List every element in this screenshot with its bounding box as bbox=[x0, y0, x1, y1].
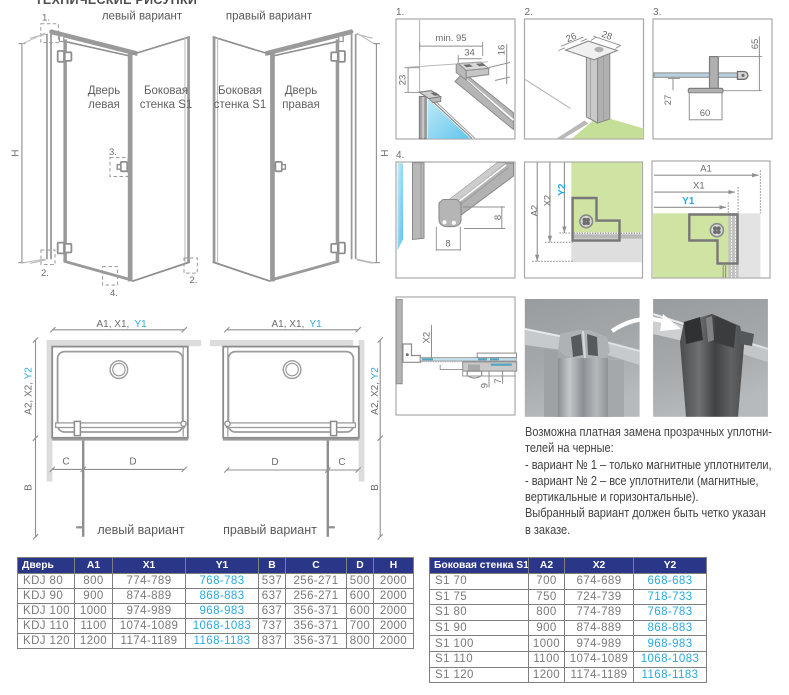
svg-text:левый вариант: левый вариант bbox=[97, 523, 185, 537]
svg-text:7: 7 bbox=[493, 378, 504, 383]
svg-text:Дверь: Дверь bbox=[88, 85, 121, 97]
svg-text:65: 65 bbox=[750, 39, 761, 50]
svg-text:Y2: Y2 bbox=[557, 183, 568, 196]
svg-text:D: D bbox=[271, 457, 278, 468]
svg-text:16: 16 bbox=[497, 45, 508, 56]
svg-text:Y1: Y1 bbox=[135, 319, 148, 330]
svg-text:8: 8 bbox=[445, 239, 450, 250]
svg-text:A1: A1 bbox=[700, 164, 712, 175]
svg-text:D: D bbox=[129, 457, 136, 468]
svg-text:правая: правая bbox=[282, 99, 320, 111]
svg-text:A2: A2 bbox=[530, 205, 541, 217]
svg-text:9: 9 bbox=[480, 383, 491, 388]
svg-text:стенка S1: стенка S1 bbox=[140, 99, 193, 111]
svg-text:B: B bbox=[24, 484, 35, 491]
svg-text:Дверь: Дверь bbox=[285, 85, 318, 97]
svg-text:60: 60 bbox=[700, 108, 711, 119]
svg-text:левый вариант: левый вариант bbox=[102, 11, 183, 23]
svg-text:H: H bbox=[380, 149, 391, 156]
svg-text:A2, X2, Y2: A2, X2, Y2 bbox=[24, 367, 35, 415]
svg-text:Боковая: Боковая bbox=[218, 85, 262, 97]
svg-text:C: C bbox=[62, 457, 69, 468]
svg-text:левая: левая bbox=[88, 99, 120, 111]
svg-text:1.: 1. bbox=[42, 13, 50, 24]
svg-text:A2, X2, Y2: A2, X2, Y2 bbox=[370, 367, 381, 415]
svg-text:Y1: Y1 bbox=[682, 196, 695, 207]
svg-text:3.: 3. bbox=[109, 147, 117, 158]
svg-text:C: C bbox=[338, 457, 345, 468]
svg-text:ТЕХНИЧЕСКИЕ РИСУНКИ: ТЕХНИЧЕСКИЕ РИСУНКИ bbox=[35, 0, 197, 7]
svg-text:A1, X1,: A1, X1, bbox=[272, 319, 305, 330]
svg-text:A1, X1,: A1, X1, bbox=[97, 319, 130, 330]
svg-text:3.: 3. bbox=[653, 7, 661, 18]
svg-text:4.: 4. bbox=[110, 288, 118, 299]
svg-text:1.: 1. bbox=[396, 7, 404, 18]
svg-text:X1: X1 bbox=[693, 181, 705, 192]
svg-text:H: H bbox=[11, 149, 22, 156]
svg-text:правый вариант: правый вариант bbox=[223, 523, 317, 537]
svg-text:правый вариант: правый вариант bbox=[226, 11, 313, 23]
svg-text:2.: 2. bbox=[190, 275, 198, 286]
svg-text:min. 95: min. 95 bbox=[435, 33, 466, 44]
svg-text:34: 34 bbox=[464, 48, 475, 59]
svg-text:X2: X2 bbox=[542, 195, 553, 207]
svg-text:4.: 4. bbox=[396, 150, 404, 161]
svg-text:стенка S1: стенка S1 bbox=[214, 99, 267, 111]
svg-text:27: 27 bbox=[663, 95, 674, 106]
svg-text:2.: 2. bbox=[41, 268, 49, 279]
svg-text:B: B bbox=[370, 484, 381, 491]
svg-text:8: 8 bbox=[493, 215, 504, 220]
svg-text:23: 23 bbox=[398, 75, 409, 86]
svg-text:Y1: Y1 bbox=[310, 319, 323, 330]
svg-text:X2: X2 bbox=[422, 332, 433, 344]
svg-text:2.: 2. bbox=[525, 7, 533, 18]
svg-text:Боковая: Боковая bbox=[144, 85, 188, 97]
